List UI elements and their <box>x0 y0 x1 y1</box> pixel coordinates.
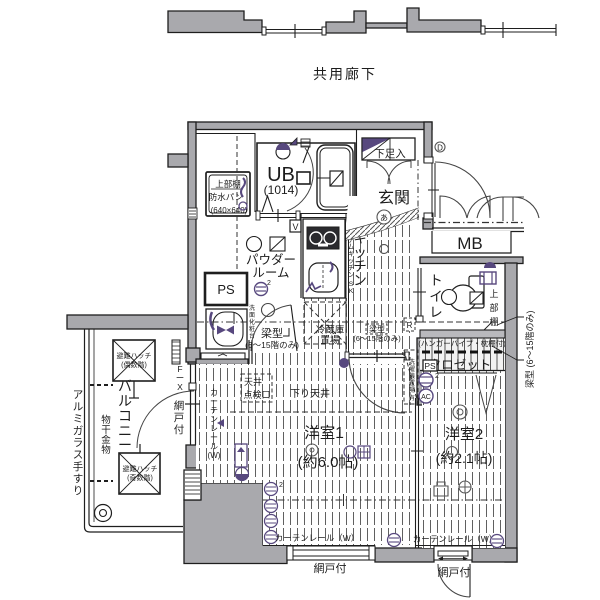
svg-text:部: 部 <box>489 302 498 313</box>
svg-text:梁型 (6〜15階のみ): 梁型 (6〜15階のみ) <box>524 310 535 388</box>
svg-text:K: K <box>349 288 354 295</box>
svg-text:共用廊下: 共用廊下 <box>313 66 377 82</box>
svg-text:イ: イ <box>429 289 443 304</box>
svg-text:避難ハッチ: 避難ハッチ <box>117 351 152 360</box>
svg-text:PS: PS <box>217 282 235 297</box>
svg-text:(W): (W) <box>208 451 221 460</box>
svg-text:玄関: 玄関 <box>378 189 410 207</box>
svg-text:(約2.1帖): (約2.1帖) <box>436 450 493 466</box>
svg-text:洋室2: 洋室2 <box>445 426 483 443</box>
svg-text:ル: ル <box>210 442 218 451</box>
svg-text:濯: 濯 <box>409 365 415 373</box>
svg-text:X: X <box>177 382 183 392</box>
svg-text:下足入: 下足入 <box>374 148 406 160</box>
svg-text:避難ハッチ: 避難ハッチ <box>123 464 158 473</box>
svg-text:付: 付 <box>174 423 185 436</box>
svg-text:ア: ア <box>73 389 84 401</box>
svg-text:2: 2 <box>435 373 439 380</box>
svg-text:(6〜15階のみ): (6〜15階のみ) <box>245 340 299 350</box>
svg-text:面: 面 <box>249 312 255 319</box>
svg-text:有: 有 <box>409 394 415 402</box>
svg-text:下り天井: 下り天井 <box>290 387 330 400</box>
svg-text:ッ: ッ <box>353 245 367 260</box>
svg-text:(奇数階): (奇数階) <box>127 473 153 482</box>
svg-text:R: R <box>407 321 413 330</box>
svg-text:2: 2 <box>267 280 271 287</box>
svg-text:ン: ン <box>210 415 218 424</box>
svg-text:ル: ル <box>118 393 132 409</box>
svg-text:テ: テ <box>210 406 218 415</box>
svg-text:洗: 洗 <box>249 304 255 312</box>
svg-text:物: 物 <box>101 444 111 456</box>
svg-text:(1014): (1014) <box>264 183 299 197</box>
svg-text:チ: チ <box>353 259 367 274</box>
svg-text:ルーム: ルーム <box>252 266 289 280</box>
svg-text:ガ: ガ <box>73 425 84 437</box>
svg-text:ン: ン <box>353 273 367 288</box>
svg-text:置場: 置場 <box>320 334 340 346</box>
svg-text:梁型: 梁型 <box>369 325 385 334</box>
svg-text:防水パン: 防水パン <box>209 192 243 202</box>
svg-text:あ: あ <box>380 214 388 223</box>
svg-text:手: 手 <box>73 460 84 473</box>
svg-text:上: 上 <box>489 289 498 299</box>
svg-text:す: す <box>73 473 84 485</box>
svg-text:(約6.0帖): (約6.0帖) <box>298 454 359 471</box>
svg-text:り: り <box>73 485 84 497</box>
svg-text:PS: PS <box>424 361 436 371</box>
svg-text:点検口: 点検口 <box>243 389 270 400</box>
svg-text:ス: ス <box>73 449 84 461</box>
svg-text:戸: 戸 <box>174 412 185 424</box>
svg-text:機: 機 <box>409 372 415 380</box>
svg-text:レ: レ <box>429 305 443 320</box>
svg-text:カーテンレール（W）: カーテンレール（W） <box>413 534 498 544</box>
svg-text:置: 置 <box>409 380 415 387</box>
svg-text:MB: MB <box>457 234 483 253</box>
svg-text:レ: レ <box>210 424 218 433</box>
svg-text:梁型: 梁型 <box>261 326 283 340</box>
svg-text:洋室1: 洋室1 <box>304 424 344 442</box>
svg-text:網戸付: 網戸付 <box>438 565 471 579</box>
svg-text:粧: 粧 <box>249 325 255 333</box>
svg-text:2: 2 <box>279 482 283 489</box>
svg-text:ー: ー <box>210 397 218 406</box>
svg-text:ル: ル <box>73 401 84 413</box>
svg-text:ラ: ラ <box>73 437 84 449</box>
svg-text:バ: バ <box>118 378 132 394</box>
svg-text:ー: ー <box>210 433 218 442</box>
svg-text:ミ: ミ <box>73 413 84 425</box>
svg-text:(6〜15階のみ): (6〜15階のみ) <box>353 333 401 343</box>
svg-text:D: D <box>437 144 443 153</box>
svg-text:カーテンレール（W）: カーテンレール（W） <box>275 533 360 543</box>
svg-text:場: 場 <box>409 386 415 394</box>
svg-text:コ: コ <box>118 408 132 424</box>
svg-text:網: 網 <box>174 399 185 412</box>
svg-text:(偶数階): (偶数階) <box>121 360 147 369</box>
svg-text:カ: カ <box>210 388 218 397</box>
svg-text:洗: 洗 <box>409 358 415 366</box>
svg-text:ト: ト <box>429 273 443 288</box>
svg-text:AC: AC <box>421 394 431 401</box>
svg-text:パウダー: パウダー <box>246 252 296 267</box>
svg-text:V: V <box>292 222 298 232</box>
svg-text:ー: ー <box>118 437 132 453</box>
svg-text:天井: 天井 <box>244 376 262 387</box>
svg-text:網戸付: 網戸付 <box>314 561 347 575</box>
